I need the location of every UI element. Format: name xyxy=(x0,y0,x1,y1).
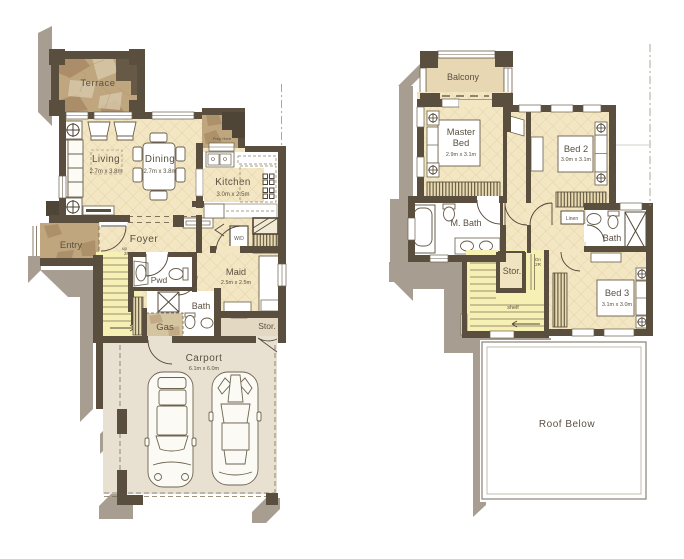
svg-text:2.9m x 3.1m: 2.9m x 3.1m xyxy=(446,152,477,158)
svg-text:Linen: Linen xyxy=(566,216,578,222)
svg-text:Balcony: Balcony xyxy=(447,72,480,82)
svg-text:3.0m x 3.1m: 3.0m x 3.1m xyxy=(561,157,592,163)
svg-text:Stor.: Stor. xyxy=(258,321,275,331)
svg-text:Prep Here: Prep Here xyxy=(213,136,232,141)
svg-text:Bed 3: Bed 3 xyxy=(605,288,629,298)
svg-text:Bed: Bed xyxy=(453,138,470,148)
svg-text:2R: 2R xyxy=(535,262,542,267)
svg-text:Kitchen: Kitchen xyxy=(215,177,250,188)
svg-text:Stor.: Stor. xyxy=(503,266,522,276)
svg-text:Bed 2: Bed 2 xyxy=(564,144,588,154)
svg-text:Pwd: Pwd xyxy=(151,275,168,285)
svg-text:Terrace: Terrace xyxy=(80,78,115,89)
svg-text:Gas: Gas xyxy=(156,322,174,333)
svg-text:Bath: Bath xyxy=(603,233,622,243)
svg-text:6.1m x 6.0m: 6.1m x 6.0m xyxy=(189,366,220,372)
svg-text:Maid: Maid xyxy=(226,267,246,277)
svg-text:Living: Living xyxy=(92,154,120,165)
svg-text:W/D: W/D xyxy=(234,236,244,242)
svg-text:2.7m x 3.8m: 2.7m x 3.8m xyxy=(143,169,176,175)
svg-text:Master: Master xyxy=(447,127,475,137)
svg-text:3.1m x 3.0m: 3.1m x 3.0m xyxy=(602,302,633,308)
svg-text:Carport: Carport xyxy=(186,353,223,364)
svg-text:Dining: Dining xyxy=(145,154,175,165)
svg-text:2.5m x 2.5m: 2.5m x 2.5m xyxy=(221,280,252,286)
svg-text:shelf: shelf xyxy=(507,305,519,311)
svg-text:2.7m x 3.8m: 2.7m x 3.8m xyxy=(89,169,122,175)
svg-text:Entry: Entry xyxy=(60,240,82,251)
svg-text:Roof Below: Roof Below xyxy=(539,419,595,430)
svg-text:Bath: Bath xyxy=(192,301,211,311)
svg-text:3.0m x 2.5m: 3.0m x 2.5m xyxy=(216,192,249,198)
svg-text:Foyer: Foyer xyxy=(130,234,159,245)
svg-text:M. Bath: M. Bath xyxy=(450,218,481,228)
